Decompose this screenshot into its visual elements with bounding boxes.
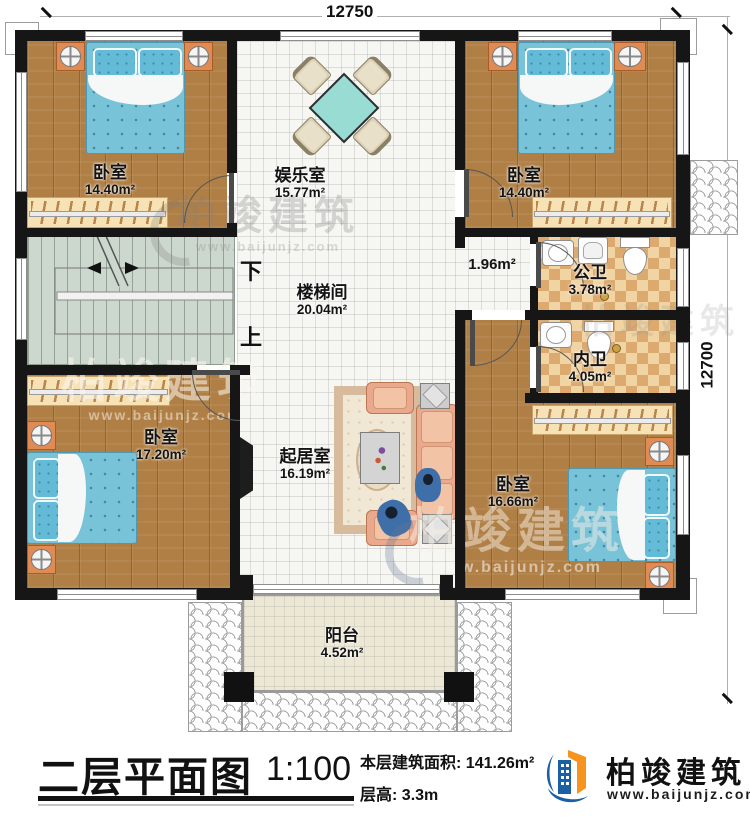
wardrobe-symbol: [532, 197, 672, 228]
cabinet-symbol: [578, 237, 608, 264]
brand-website: www.baijunjz.com: [607, 786, 750, 802]
room-label-entertainment: 娱乐室 15.77m²: [275, 166, 326, 200]
wall: [15, 365, 197, 375]
room-label-bedroom-topleft: 卧室 14.40m²: [85, 163, 135, 197]
wall: [455, 310, 465, 588]
window: [280, 31, 420, 41]
bed-sheet: [58, 454, 86, 542]
brand-logo-icon: [538, 746, 602, 808]
pillow: [33, 458, 60, 499]
corner-table-symbol: [420, 383, 450, 409]
roof-hatch-balcony-front: [242, 692, 457, 732]
dimension-label-top: 12750: [322, 2, 377, 22]
window: [57, 589, 197, 600]
bed-sheet: [520, 75, 613, 105]
room-label-bedroom-topright: 卧室 14.40m²: [499, 166, 549, 200]
window: [16, 72, 27, 192]
pillow: [569, 48, 612, 77]
nightstand-lamp-symbol: [645, 562, 674, 591]
door-leaf: [192, 370, 240, 375]
floor-height-value: 3.3m: [402, 787, 438, 804]
nightstand-lamp-symbol: [184, 42, 213, 71]
window: [677, 455, 689, 535]
floor-hall-east: [455, 236, 530, 310]
drawing-scale: 1:100: [266, 750, 351, 789]
wall: [525, 393, 690, 403]
sofa-cushion: [373, 387, 407, 409]
pillow: [525, 48, 568, 77]
wall: [455, 236, 465, 248]
sink-symbol: [540, 322, 572, 348]
wall: [530, 286, 538, 310]
wall: [525, 310, 690, 320]
window: [85, 31, 183, 41]
floor-area-info: 本层建筑面积: 141.26m²: [360, 749, 534, 773]
sofa-symbol: [416, 404, 458, 520]
roof-hatch-balcony-right: [457, 602, 512, 732]
floor-height-label: 层高:: [360, 787, 397, 804]
pillow: [93, 48, 137, 77]
bed-symbol: [518, 42, 615, 154]
dimension-line-top: [40, 16, 730, 17]
wardrobe-symbol: [27, 197, 168, 228]
door-leaf: [536, 346, 541, 392]
bed-symbol: [27, 452, 137, 544]
floorplan-drawing: 12750 12700: [0, 0, 750, 733]
door-leaf: [536, 242, 541, 288]
pillow: [643, 517, 670, 559]
tv-symbol: [240, 437, 253, 499]
dimension-line-right: [727, 16, 728, 704]
stair-up-label: 上: [240, 320, 262, 352]
room-label-inner-bath: 内卫 4.05m²: [569, 350, 612, 384]
bed-sheet: [88, 75, 183, 105]
window: [16, 258, 27, 340]
pillow: [643, 474, 670, 516]
nightstand-lamp-symbol: [488, 42, 517, 71]
door-leaf: [464, 169, 469, 217]
floor-height-info: 层高: 3.3m: [360, 781, 438, 805]
pillow: [33, 500, 60, 541]
toilet-symbol: [620, 237, 650, 275]
bed-sheet: [617, 470, 645, 560]
balcony-column: [224, 672, 254, 702]
nightstand-lamp-symbol: [56, 42, 85, 71]
room-label-stairwell: 楼梯间 20.04m²: [297, 283, 348, 317]
nightstand-lamp-symbol: [645, 437, 674, 466]
room-label-living: 起居室 16.19m²: [280, 447, 331, 481]
drawing-title: 二层平面图: [38, 743, 253, 803]
wall: [227, 41, 237, 173]
dimension-label-right: 12700: [698, 337, 718, 392]
door-leaf: [229, 173, 234, 223]
floorplan-canvas: 12750 12700: [0, 0, 750, 818]
wall: [455, 41, 465, 170]
corridor-area-label: 1.96m²: [468, 256, 516, 273]
wall: [455, 228, 690, 237]
door-leaf: [470, 320, 475, 366]
balcony-sliding-door: [253, 584, 440, 594]
floor-drain-symbol: [612, 344, 621, 353]
window: [518, 31, 612, 41]
title-bar: 二层平面图 1:100 本层建筑面积: 141.26m² 层高: 3.3m 柏竣…: [0, 733, 750, 818]
room-label-bedroom-bottomleft: 卧室 17.20m²: [136, 428, 186, 462]
pillow: [138, 48, 182, 77]
person-figure: [415, 468, 441, 502]
nightstand-lamp-symbol: [27, 421, 56, 450]
window: [505, 589, 640, 600]
room-label-public-bath: 公卫 3.78m²: [569, 263, 612, 297]
title-underline: [38, 796, 354, 801]
staircase-symbols: [27, 236, 235, 365]
armchair-symbol: [366, 382, 414, 414]
bed-symbol: [86, 42, 185, 154]
corner-table-symbol: [422, 514, 452, 544]
balcony-column: [444, 672, 474, 702]
nightstand-lamp-symbol: [27, 545, 56, 574]
room-label-bedroom-bottomright: 卧室 16.66m²: [488, 475, 538, 509]
floor-area-label: 本层建筑面积:: [360, 755, 461, 772]
coffee-table-symbol: [360, 432, 400, 484]
stair-down-label: 下: [240, 254, 262, 286]
floor-area-value: 141.26m²: [466, 755, 535, 772]
wall: [530, 320, 538, 347]
nightstand-lamp-symbol: [614, 42, 646, 71]
roof-hatch-patch: [690, 160, 738, 235]
wall: [15, 228, 237, 237]
room-label-balcony: 阳台 4.52m²: [321, 626, 364, 660]
wall: [455, 310, 472, 320]
window: [677, 62, 689, 155]
toilet-bowl: [623, 247, 647, 275]
wardrobe-symbol: [532, 405, 673, 435]
window: [677, 248, 689, 307]
window: [677, 342, 689, 390]
title-underline-light: [38, 804, 354, 806]
wardrobe-symbol: [27, 376, 170, 406]
bed-symbol: [568, 468, 676, 562]
sofa-cushion: [421, 411, 453, 443]
wall: [440, 575, 453, 600]
wall: [240, 575, 253, 600]
roof-hatch-balcony-left: [188, 602, 242, 732]
